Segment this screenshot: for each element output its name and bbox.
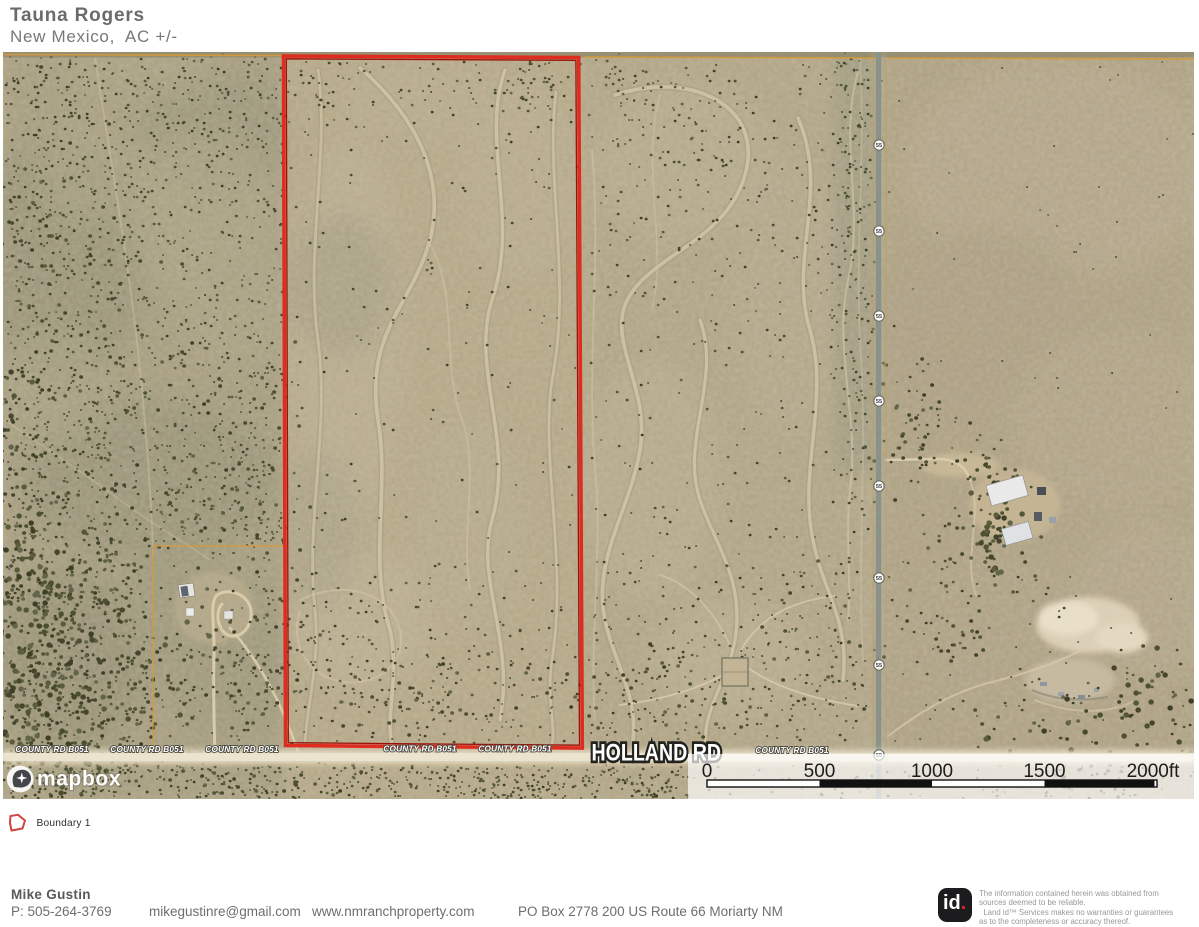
svg-text:2000ft: 2000ft — [1127, 761, 1181, 782]
svg-text:COUNTY RD B051: COUNTY RD B051 — [383, 745, 456, 754]
svg-text:COUNTY RD B051: COUNTY RD B051 — [205, 745, 278, 754]
svg-text:55: 55 — [876, 143, 882, 149]
svg-text:55: 55 — [876, 576, 882, 582]
svg-text:55: 55 — [876, 663, 882, 669]
svg-text:55: 55 — [876, 229, 882, 235]
svg-text:55: 55 — [876, 314, 882, 320]
svg-text:1000: 1000 — [911, 761, 953, 782]
svg-text:55: 55 — [876, 484, 882, 490]
svg-text:COUNTY RD B051: COUNTY RD B051 — [110, 745, 183, 754]
svg-text:55: 55 — [876, 399, 882, 405]
svg-text:mapbox: mapbox — [37, 768, 121, 791]
svg-text:COUNTY RD B051: COUNTY RD B051 — [15, 745, 88, 754]
svg-text:1500: 1500 — [1023, 761, 1065, 782]
svg-text:COUNTY RD B051: COUNTY RD B051 — [478, 745, 551, 754]
svg-text:500: 500 — [804, 761, 836, 782]
svg-text:0: 0 — [702, 761, 713, 782]
svg-text:COUNTY RD B051: COUNTY RD B051 — [755, 746, 828, 755]
